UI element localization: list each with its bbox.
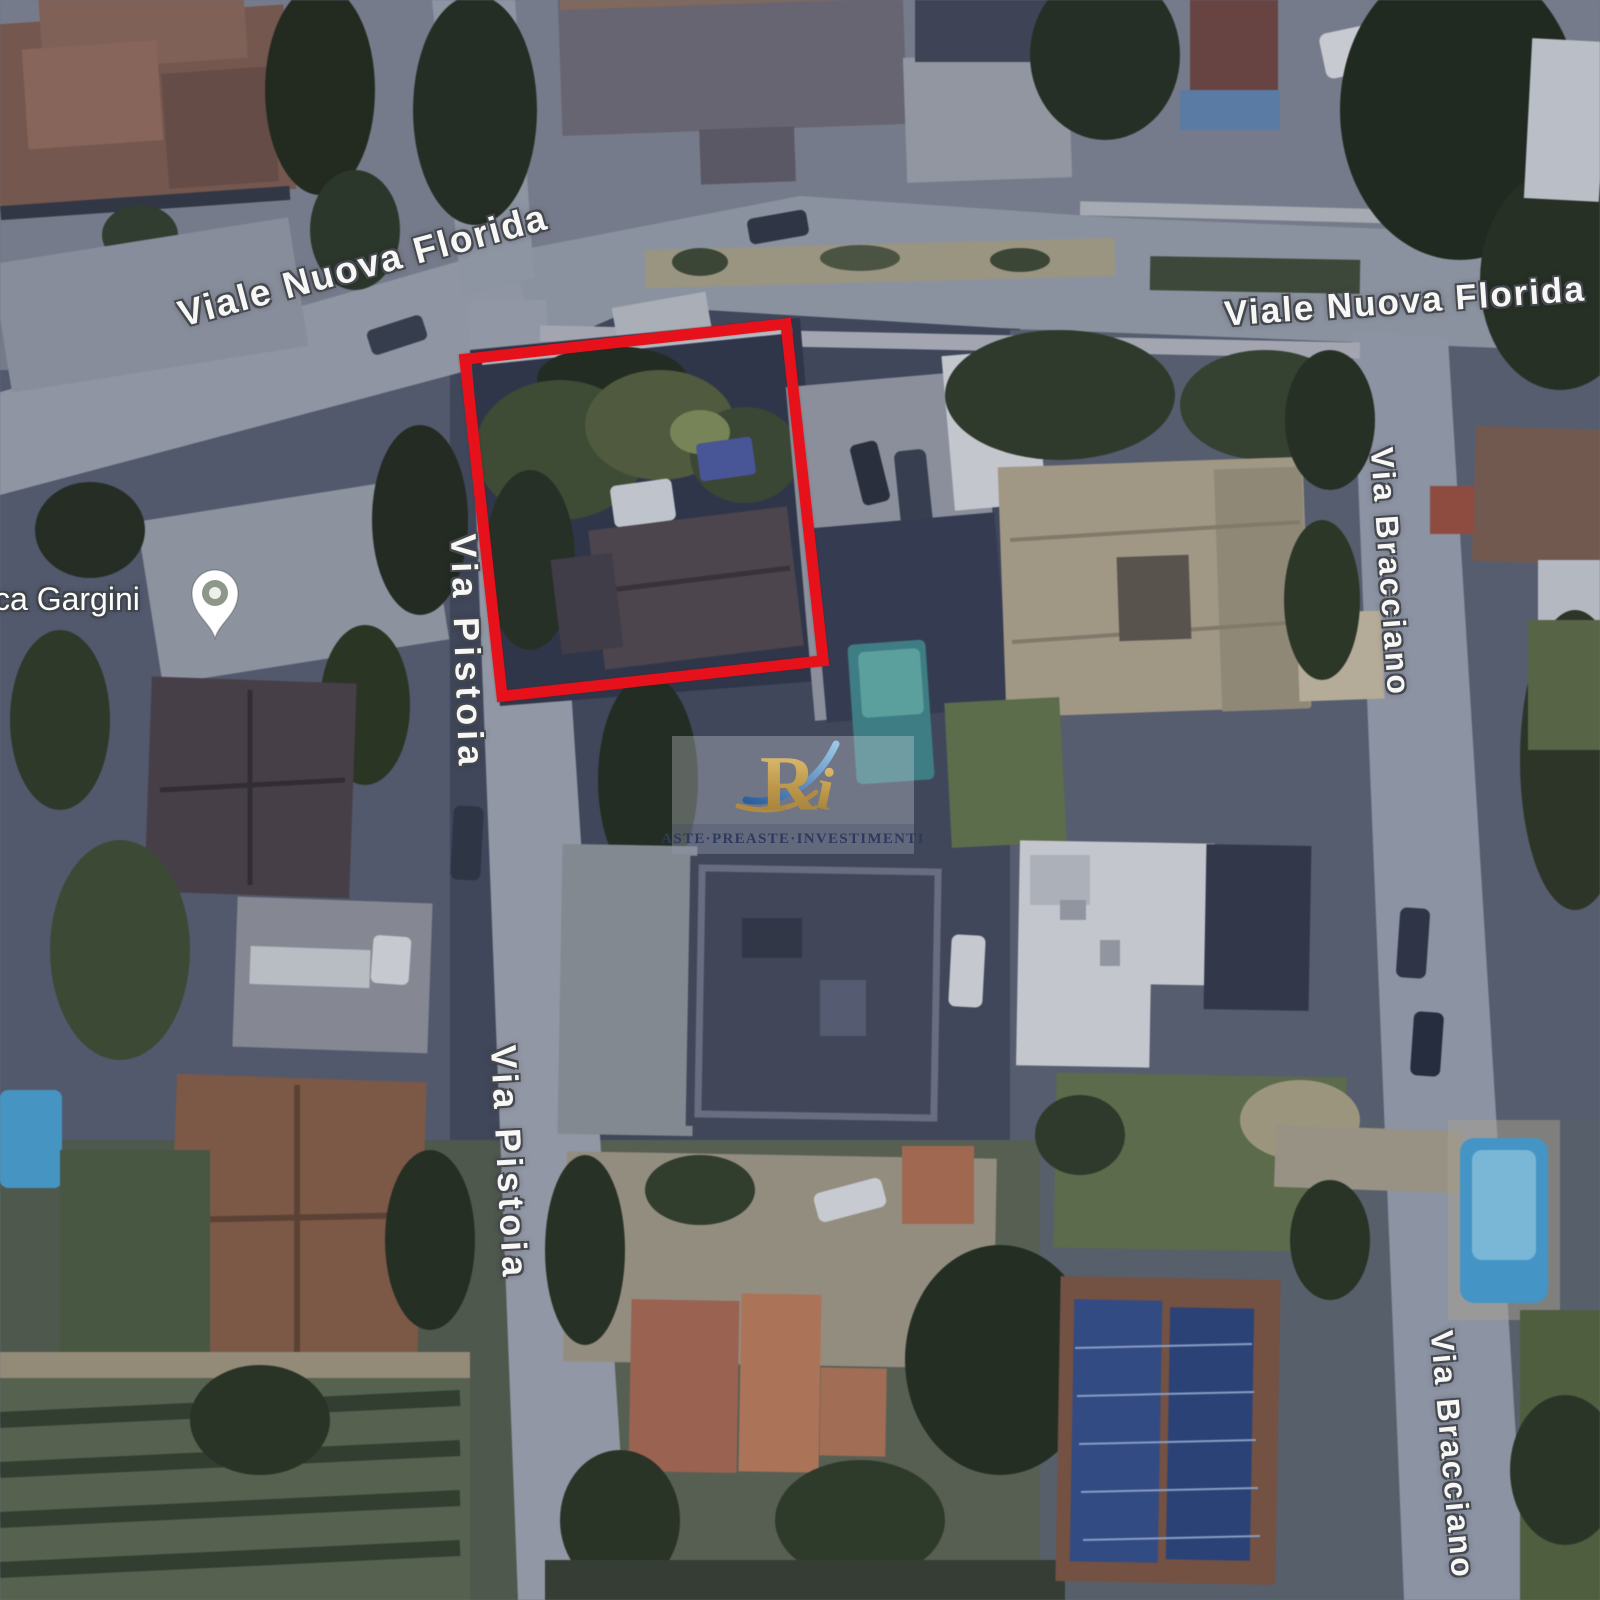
agency-watermark: R i ASTE·PREASTE·INVESTIMENTI xyxy=(672,736,914,854)
monogram-r: R xyxy=(760,740,818,822)
place-label-ca-gargini: ca Gargini xyxy=(0,581,140,618)
agency-caption: ASTE·PREASTE·INVESTIMENTI xyxy=(672,824,914,854)
agency-logo-monogram: R i xyxy=(708,734,878,822)
property-highlight-rectangle xyxy=(459,318,829,703)
listing-map-image: Viale Nuova Florida Viale Nuova Florida … xyxy=(0,0,1600,1600)
map-pin-icon xyxy=(188,566,242,640)
